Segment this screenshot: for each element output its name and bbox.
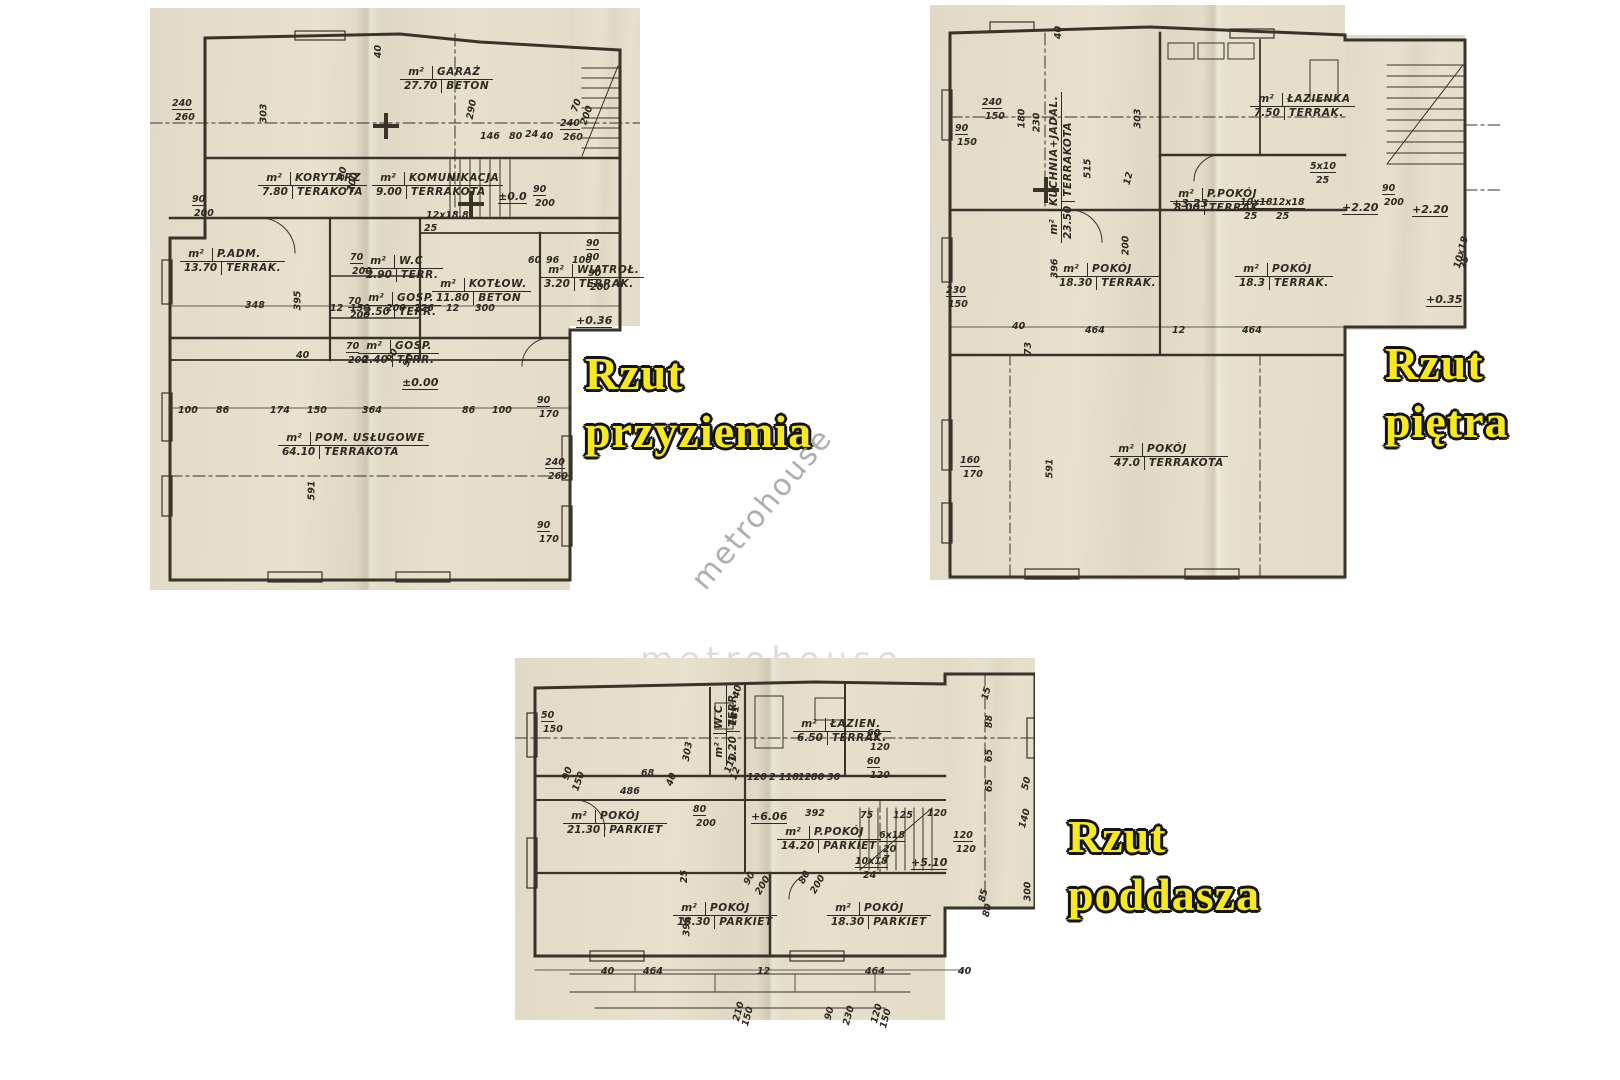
room-area: 6.50 bbox=[793, 732, 828, 745]
dimension: 146 bbox=[480, 131, 500, 142]
dimension: 50 bbox=[541, 710, 554, 722]
room-label: m²GARAŻ27.70BETON bbox=[400, 66, 493, 93]
room-m2: m² bbox=[1235, 263, 1268, 276]
room-name: POKÓJ bbox=[1143, 443, 1191, 456]
dimension: 2 bbox=[769, 772, 776, 783]
plan-title-line: Rzut bbox=[1068, 808, 1260, 866]
room-area: 21.30 bbox=[563, 824, 605, 837]
dimension: 170 bbox=[963, 469, 983, 480]
dimension: 24 bbox=[863, 870, 876, 881]
dimension: 90 bbox=[586, 238, 599, 250]
dimension: 200 bbox=[696, 818, 716, 829]
plan-title-line: przyziemia bbox=[585, 403, 812, 461]
dimension: 230 bbox=[1031, 113, 1042, 133]
dimension: 40 bbox=[296, 350, 309, 361]
dimension: 15 bbox=[980, 686, 994, 702]
dimension: 12 bbox=[446, 303, 459, 314]
room-label: m²POKÓJ18.3TERRAK. bbox=[1235, 263, 1333, 290]
dimension: 303 bbox=[681, 741, 695, 762]
dimension: 25 bbox=[1276, 211, 1289, 222]
room-area: 7.50 bbox=[1250, 107, 1285, 120]
dimension: 120 bbox=[870, 742, 890, 753]
dimension: 396 bbox=[1049, 259, 1060, 279]
room-m2: m² bbox=[278, 432, 311, 445]
room-area: 18.3 bbox=[1235, 277, 1270, 290]
dimension: 120 bbox=[956, 844, 976, 855]
dimension: 260 bbox=[175, 112, 195, 123]
room-m2: m² bbox=[258, 172, 291, 185]
room-label: m²KOTŁOW.11.80BETON bbox=[432, 278, 531, 305]
plan-title-pietra: Rzut piętra bbox=[1385, 335, 1509, 451]
labels-layer-przyziemie: m²GARAŻ27.70BETONm²KORYTARZ7.80TERAKOTAm… bbox=[150, 8, 640, 590]
plan-title-line: piętra bbox=[1385, 393, 1509, 451]
room-m2: m² bbox=[432, 278, 465, 291]
dimension: 25 bbox=[1458, 255, 1472, 271]
dimension: 464 bbox=[643, 966, 663, 977]
level-mark: +0.36 bbox=[576, 314, 612, 328]
dimension: 150 bbox=[307, 405, 327, 416]
dimension: 90 bbox=[192, 194, 205, 206]
room-name: POM. USŁUGOWE bbox=[311, 432, 429, 445]
dimension: 160 bbox=[960, 455, 980, 467]
dimension: 12 bbox=[1172, 325, 1185, 336]
dimension: 80 bbox=[797, 869, 813, 886]
dimension: 7 bbox=[883, 854, 890, 865]
room-label: m²POM. USŁUGOWE64.10TERRAKOTA bbox=[278, 432, 429, 459]
room-m2: m² bbox=[180, 248, 213, 261]
dimension: 120 bbox=[747, 772, 767, 783]
dimension: 12 bbox=[798, 772, 811, 783]
room-m2: m² bbox=[827, 902, 860, 915]
room-label: m²P.ADM.13.70TERRAK. bbox=[180, 248, 285, 275]
dimension: 150 bbox=[948, 299, 968, 310]
plan-title-line: Rzut bbox=[585, 345, 812, 403]
room-m2: m² bbox=[1250, 93, 1283, 106]
room-name: POKÓJ bbox=[1088, 263, 1136, 276]
dimension: 230 bbox=[946, 285, 966, 297]
dimension: 364 bbox=[362, 405, 382, 416]
room-area: 27.70 bbox=[400, 80, 442, 93]
dimension: 90 bbox=[823, 1006, 837, 1022]
room-floor: PARKIET bbox=[605, 824, 667, 837]
room-area: 9.00 bbox=[372, 186, 407, 199]
dimension: 60 bbox=[867, 728, 880, 740]
room-area: 13.70 bbox=[180, 262, 222, 275]
dimension: 40 bbox=[664, 771, 679, 787]
room-name: POKÓJ bbox=[860, 902, 908, 915]
dimension: 150 bbox=[985, 111, 1005, 122]
dimension: 100 bbox=[492, 405, 512, 416]
room-m2: m² bbox=[400, 66, 433, 79]
dimension: 90 bbox=[1382, 183, 1395, 195]
room-floor: PARKIET bbox=[715, 916, 777, 929]
dimension: 125 bbox=[893, 810, 913, 821]
dimension: 200 bbox=[1384, 197, 1404, 208]
dimension: 12 bbox=[330, 303, 343, 314]
room-m2: m² bbox=[563, 810, 596, 823]
dimension: 200 bbox=[1120, 236, 1131, 256]
dimension: 30 bbox=[827, 772, 840, 783]
dimension: 240 bbox=[982, 97, 1002, 109]
room-label: m²POKÓJ47.0TERRAKOTA bbox=[1110, 443, 1228, 470]
floorplan-przyziemie: m²GARAŻ27.70BETONm²KORYTARZ7.80TERAKOTAm… bbox=[150, 8, 640, 590]
dimension: 464 bbox=[865, 966, 885, 977]
room-name: W.C bbox=[713, 701, 726, 733]
dimension: 303 bbox=[258, 104, 269, 124]
room-m2: m² bbox=[358, 340, 391, 353]
room-name: W.C bbox=[395, 255, 427, 268]
level-mark: +2.20 bbox=[1342, 201, 1378, 215]
dimension: 290 bbox=[465, 99, 479, 120]
dimension: 5x10 bbox=[1310, 161, 1336, 173]
dimension: 40 bbox=[1012, 321, 1025, 332]
level-mark: +3.23 bbox=[1172, 197, 1208, 211]
room-area: 18.30 bbox=[673, 916, 715, 929]
dimension: 73 bbox=[1023, 342, 1034, 355]
level-mark: +5.10 bbox=[911, 856, 947, 870]
room-m2: m² bbox=[793, 718, 826, 731]
room-name: POKÓJ bbox=[1268, 263, 1316, 276]
dimension: 68 bbox=[641, 768, 654, 779]
dimension: 40 bbox=[958, 966, 971, 977]
dimension: 591 bbox=[306, 481, 317, 501]
level-mark: +2.20 bbox=[1412, 203, 1448, 217]
dimension: 464 bbox=[1242, 325, 1262, 336]
floorplan-pietro: m²KUCHNIA+JADAL.23.50TERRAKOTAm²ŁAZIENKA… bbox=[930, 5, 1500, 580]
room-name: GARAŻ bbox=[433, 66, 485, 79]
dimension: 120 bbox=[927, 808, 947, 819]
dimension: 464 bbox=[1085, 325, 1105, 336]
room-floor: TERRAK. bbox=[1270, 277, 1333, 290]
room-label: m²POKÓJ21.30PARKIET bbox=[563, 810, 667, 837]
dimension: 170 bbox=[539, 534, 559, 545]
dimension: 96 bbox=[546, 255, 559, 266]
dimension: 90 bbox=[537, 395, 550, 407]
dimension: 12x18.8 bbox=[426, 210, 469, 221]
dimension: 86 bbox=[216, 405, 229, 416]
dimension: 90 bbox=[533, 184, 546, 196]
room-label: m²P.POKÓJ14.20PARKIET bbox=[777, 826, 881, 853]
room-floor: TERRAK. bbox=[1285, 107, 1348, 120]
dimension: 25 bbox=[424, 223, 437, 234]
room-area: 14.20 bbox=[777, 840, 819, 853]
dimension: 50 bbox=[1020, 776, 1034, 792]
dimension: 90 bbox=[742, 870, 758, 887]
dimension: 200 bbox=[348, 355, 368, 366]
plan-title-poddasza: Rzut poddasza bbox=[1068, 808, 1260, 924]
dimension: 88 bbox=[984, 715, 995, 728]
dimension: 90 bbox=[588, 268, 601, 280]
room-floor: TERRAK. bbox=[1097, 277, 1160, 290]
dimension: 260 bbox=[548, 471, 568, 482]
room-name: KUCHNIA+JADAL. bbox=[1048, 92, 1061, 210]
room-name: P.POKÓJ bbox=[810, 826, 868, 839]
plan-title-line: poddasza bbox=[1068, 866, 1260, 924]
dimension: 65 bbox=[984, 779, 995, 792]
plan-title-przyziemia: Rzut przyziemia bbox=[585, 345, 812, 461]
dimension: 12 bbox=[757, 966, 770, 977]
room-area: 7.80 bbox=[258, 186, 293, 199]
dimension: 40 bbox=[373, 45, 384, 58]
dimension: 75 bbox=[860, 810, 873, 821]
dimension: 396 bbox=[681, 917, 692, 937]
dimension: 200 bbox=[590, 282, 610, 293]
room-floor: PARKIET bbox=[819, 840, 881, 853]
room-floor: TERRAKOTA bbox=[1145, 457, 1228, 470]
dimension: 240 bbox=[560, 118, 580, 130]
dimension: 260 bbox=[563, 132, 583, 143]
level-mark: ±0.0 bbox=[498, 190, 527, 204]
room-m2: m² bbox=[372, 172, 405, 185]
dimension: 85 bbox=[977, 888, 991, 904]
dimension: 150 bbox=[350, 303, 370, 314]
dimension: 591 bbox=[1044, 459, 1055, 479]
dimension: 40 bbox=[540, 131, 553, 142]
room-floor: TERRAKOTA bbox=[1062, 118, 1075, 201]
room-label: m²POKÓJ18.30PARKIET bbox=[827, 902, 931, 929]
dimension: 120 bbox=[870, 770, 890, 781]
dimension: 395 bbox=[292, 291, 303, 311]
dimension: 100 bbox=[572, 255, 592, 266]
room-label: m²W.C2.90TERR. bbox=[362, 255, 443, 282]
dimension: 348 bbox=[245, 300, 265, 311]
room-area: 23.50 bbox=[1062, 201, 1075, 243]
dimension: 100 bbox=[178, 405, 198, 416]
dimension: 515 bbox=[1082, 159, 1093, 179]
level-mark: ±0.00 bbox=[402, 376, 438, 390]
dimension: 60 bbox=[528, 255, 541, 266]
dimension: 6x18 bbox=[879, 830, 905, 842]
dimension: 80 bbox=[981, 903, 995, 919]
dimension: 120 bbox=[953, 830, 973, 842]
room-label: m²ŁAZIENKA7.50TERRAK. bbox=[1250, 93, 1355, 120]
room-name: POKÓJ bbox=[596, 810, 644, 823]
room-area: 18.30 bbox=[1055, 277, 1097, 290]
dimension: 80 bbox=[509, 131, 522, 142]
dimension: 226 bbox=[414, 303, 434, 314]
dimension: 25 bbox=[679, 870, 690, 883]
room-name: P.ADM. bbox=[213, 248, 265, 261]
room-name: POKÓJ bbox=[706, 902, 754, 915]
dimension: 80 bbox=[693, 804, 706, 816]
dimension: 70 bbox=[350, 252, 363, 264]
room-area: 47.0 bbox=[1110, 457, 1145, 470]
dimension: 12x18 bbox=[1272, 197, 1305, 209]
room-floor: TERRAKOTA bbox=[320, 446, 403, 459]
dimension: 230 bbox=[841, 1004, 857, 1026]
dimension: 240 bbox=[545, 457, 565, 469]
dimension: 303 bbox=[1132, 109, 1143, 129]
dimension: 200 bbox=[194, 208, 214, 219]
dimension: 25 bbox=[1244, 211, 1257, 222]
dimension: 170 bbox=[539, 409, 559, 420]
dimension: 24 bbox=[525, 129, 538, 140]
labels-layer-pietro: m²KUCHNIA+JADAL.23.50TERRAKOTAm²ŁAZIENKA… bbox=[930, 5, 1500, 580]
dimension: 70 bbox=[346, 341, 359, 353]
dimension: 200 bbox=[535, 198, 555, 209]
room-area: 64.10 bbox=[278, 446, 320, 459]
room-name: ŁAZIENKA bbox=[1283, 93, 1355, 106]
level-mark: +6.06 bbox=[751, 810, 787, 824]
room-name: KOTŁOW. bbox=[465, 278, 531, 291]
dimension: 40 bbox=[1053, 26, 1064, 39]
dimension: 40 bbox=[601, 966, 614, 977]
dimension: 150 bbox=[543, 724, 563, 735]
floorplan-poddasze: m²W.C1.20TERR.m²ŁAZIEN.6.50TERRAK.m²POKÓ… bbox=[515, 658, 1035, 1020]
room-m2: m² bbox=[673, 902, 706, 915]
dimension: 200 bbox=[352, 266, 372, 277]
dimension: 150 bbox=[957, 137, 977, 148]
dimension: 12 bbox=[1122, 171, 1136, 187]
room-m2: m² bbox=[777, 826, 810, 839]
room-m2: m² bbox=[1110, 443, 1143, 456]
dimension: 80 bbox=[811, 772, 824, 783]
level-mark: +0.35 bbox=[1426, 293, 1462, 307]
dimension: 25 bbox=[1316, 175, 1329, 186]
dimension: 180 bbox=[1016, 109, 1027, 129]
room-area: 3.20 bbox=[540, 278, 575, 291]
room-m2: m² bbox=[1048, 210, 1061, 243]
dimension: 300 bbox=[475, 303, 495, 314]
room-floor: TERRAKOTA bbox=[407, 186, 490, 199]
room-m2: m² bbox=[713, 733, 726, 766]
room-floor: TERR. bbox=[393, 354, 439, 367]
room-label: m²POKÓJ18.30TERRAK. bbox=[1055, 263, 1160, 290]
room-label: m²KUCHNIA+JADAL.23.50TERRAKOTA bbox=[1048, 92, 1075, 243]
room-floor: PARKIET bbox=[869, 916, 931, 929]
dimension: 140 bbox=[1017, 807, 1033, 829]
dimension: 240 bbox=[172, 98, 192, 110]
dimension: 65 bbox=[984, 749, 995, 762]
dimension: 90 bbox=[955, 123, 968, 135]
dimension: 118 bbox=[779, 772, 799, 783]
dimension: 10x18 bbox=[1240, 197, 1273, 209]
room-floor: BETON bbox=[442, 80, 493, 93]
room-label: m²KOMUNIKACJA9.00TERRAKOTA bbox=[372, 172, 503, 199]
dimension: 486 bbox=[620, 786, 640, 797]
dimension: 86 bbox=[462, 405, 475, 416]
dimension: 90 bbox=[537, 520, 550, 532]
room-name: KOMUNIKACJA bbox=[405, 172, 503, 185]
dimension: 392 bbox=[805, 808, 825, 819]
plan-title-line: Rzut bbox=[1385, 335, 1509, 393]
room-floor: TERRAK. bbox=[222, 262, 285, 275]
dimension: 300 bbox=[1022, 882, 1033, 902]
room-area: 18.30 bbox=[827, 916, 869, 929]
labels-layer-poddasze: m²W.C1.20TERR.m²ŁAZIEN.6.50TERRAK.m²POKÓ… bbox=[515, 658, 1035, 1020]
dimension: 40 bbox=[731, 684, 744, 699]
dimension: 200 bbox=[386, 303, 406, 314]
dimension: 174 bbox=[270, 405, 290, 416]
dimension: 60 bbox=[867, 756, 880, 768]
